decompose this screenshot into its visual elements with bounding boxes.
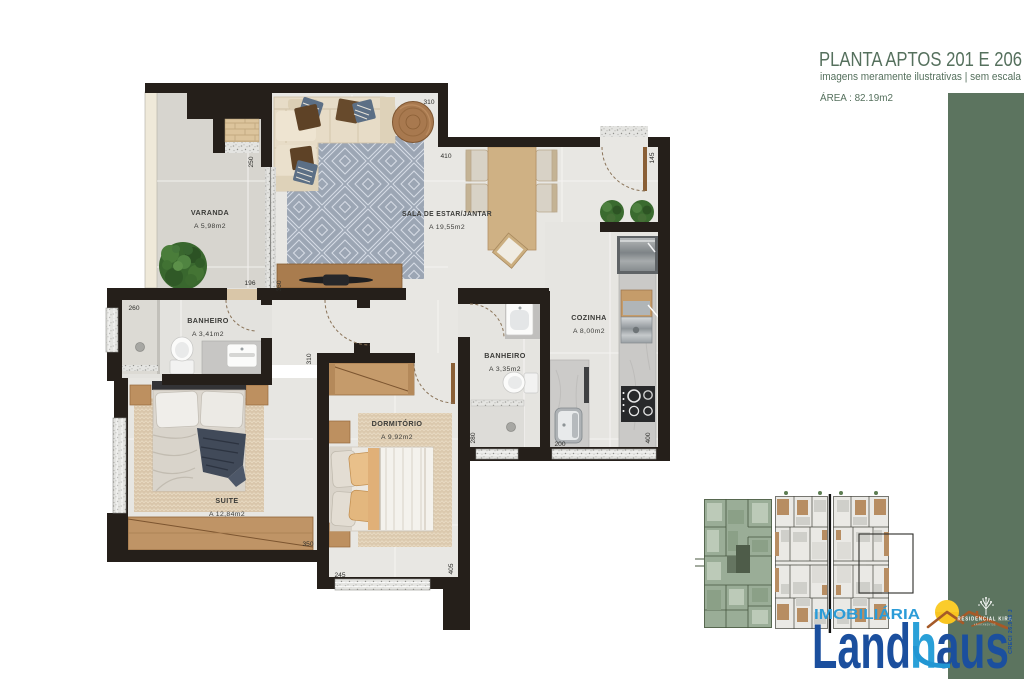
svg-text:350: 350 xyxy=(302,541,313,548)
svg-text:A 3,35m2: A 3,35m2 xyxy=(489,366,521,373)
svg-text:200: 200 xyxy=(554,441,565,448)
svg-text:196: 196 xyxy=(244,280,255,287)
svg-text:A 5,98m2: A 5,98m2 xyxy=(194,223,226,230)
svg-text:280: 280 xyxy=(470,432,477,443)
svg-text:BANHEIRO: BANHEIRO xyxy=(484,351,526,360)
svg-text:aus: aus xyxy=(936,612,1009,679)
svg-text:405: 405 xyxy=(448,563,455,574)
svg-text:ÁREA : 82.19m2: ÁREA : 82.19m2 xyxy=(820,91,893,104)
svg-text:310: 310 xyxy=(306,353,313,364)
svg-text:VARANDA: VARANDA xyxy=(191,208,229,217)
svg-text:310: 310 xyxy=(423,99,434,106)
svg-text:DORMITÓRIO: DORMITÓRIO xyxy=(372,419,423,428)
svg-text:A 9,92m2: A 9,92m2 xyxy=(381,434,413,441)
svg-text:260: 260 xyxy=(128,305,139,312)
svg-text:imagens meramente ilustrativas: imagens meramente ilustrativas | sem esc… xyxy=(820,71,1021,83)
svg-text:A 19,55m2: A 19,55m2 xyxy=(429,224,465,231)
svg-text:SUITE: SUITE xyxy=(215,496,238,505)
svg-text:PLANTA APTOS 201 E 206: PLANTA APTOS 201 E 206 xyxy=(819,48,1022,71)
svg-text:Land: Land xyxy=(812,612,911,679)
svg-text:A 12,84m2: A 12,84m2 xyxy=(209,511,245,518)
svg-text:COZINHA: COZINHA xyxy=(571,313,607,322)
svg-text:145: 145 xyxy=(649,152,656,163)
svg-text:410: 410 xyxy=(440,153,451,160)
svg-text:250: 250 xyxy=(248,156,255,167)
svg-text:SALA DE ESTAR/JANTAR: SALA DE ESTAR/JANTAR xyxy=(402,209,492,218)
svg-text:BANHEIRO: BANHEIRO xyxy=(187,316,229,325)
svg-text:h: h xyxy=(910,612,937,679)
svg-text:CRECI 26.946 J: CRECI 26.946 J xyxy=(1008,609,1014,654)
svg-text:A 8,00m2: A 8,00m2 xyxy=(573,328,605,335)
svg-text:400: 400 xyxy=(645,432,652,443)
svg-text:360: 360 xyxy=(276,280,283,291)
svg-text:245: 245 xyxy=(334,572,345,579)
svg-text:A 3,41m2: A 3,41m2 xyxy=(192,331,224,338)
